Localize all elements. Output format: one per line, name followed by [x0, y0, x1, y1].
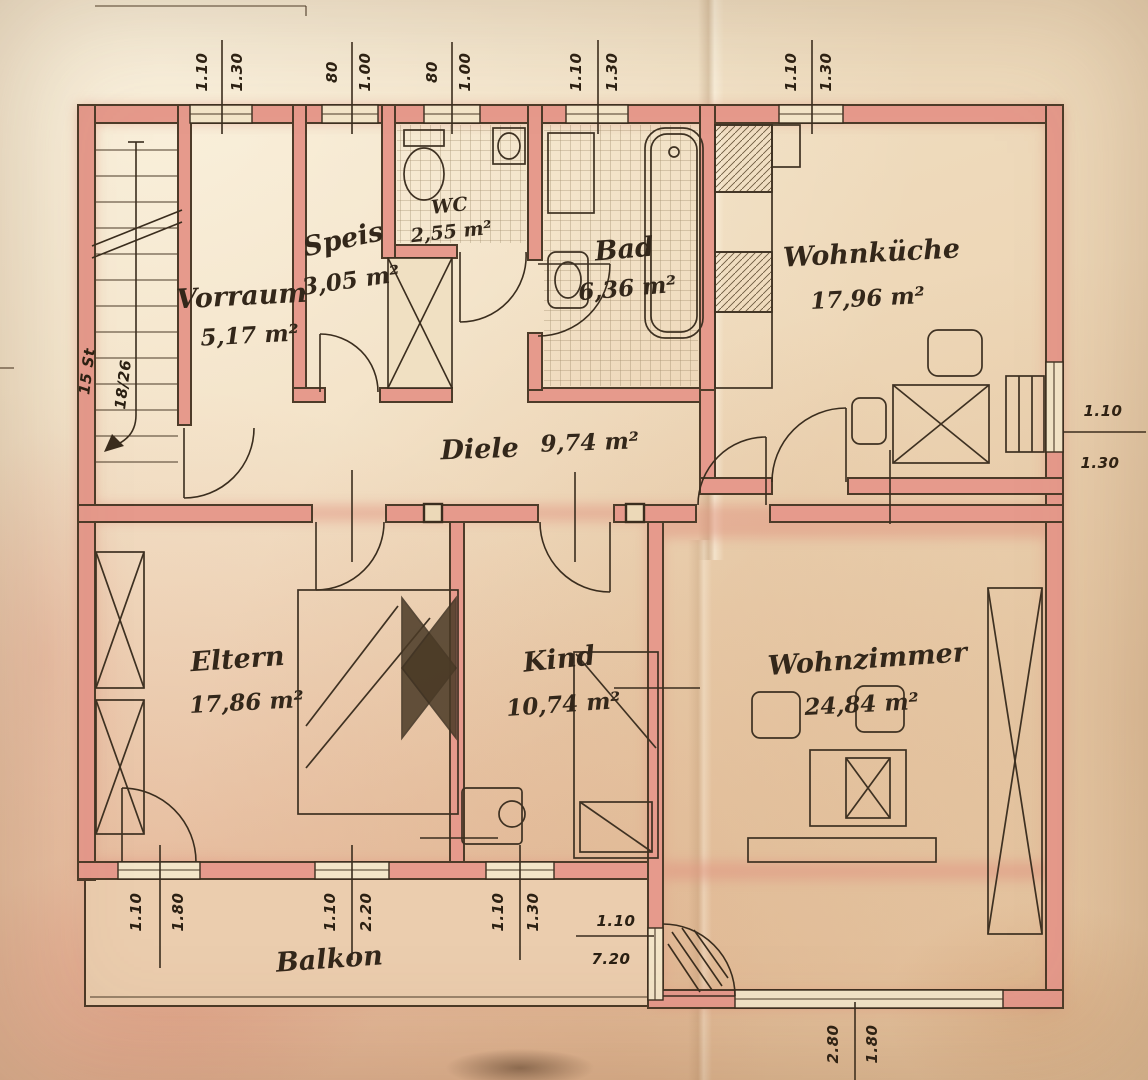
paper-vignette: [0, 0, 1148, 1080]
floor-plan-scan: 15 St 18/26: [0, 0, 1148, 1080]
